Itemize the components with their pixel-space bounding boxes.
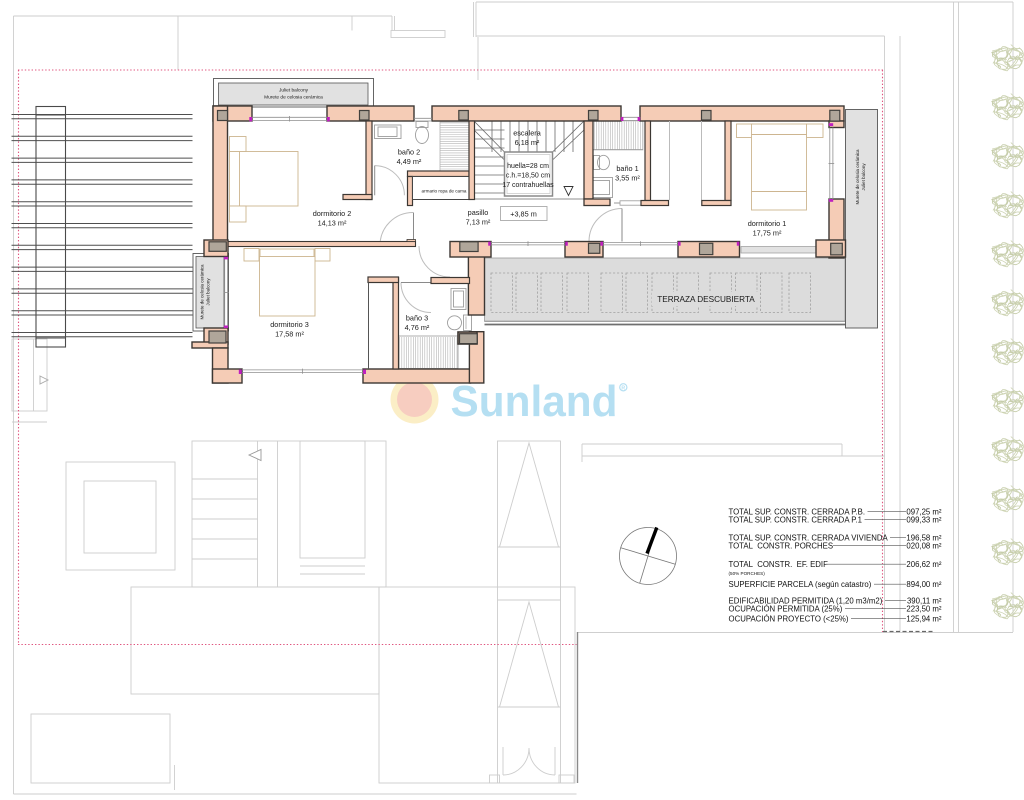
svg-text:TOTAL SUP. CONSTR. CERRADA P.1: TOTAL SUP. CONSTR. CERRADA P.1: [729, 516, 862, 525]
svg-text:206,62 m²: 206,62 m²: [906, 560, 942, 569]
svg-text:TOTAL CONSTR. EF. EDIF: TOTAL CONSTR. EF. EDIF: [729, 560, 829, 569]
svg-text:escalera: escalera: [513, 129, 542, 138]
svg-text:TERRAZA DESCUBIERTA: TERRAZA DESCUBIERTA: [657, 295, 755, 304]
svg-text:6,18 m²: 6,18 m²: [515, 138, 540, 147]
svg-text:Sunland: Sunland: [451, 378, 618, 426]
svg-text:+3,85 m: +3,85 m: [510, 210, 537, 219]
svg-text:dormitorio 2: dormitorio 2: [313, 209, 352, 218]
svg-text:17 contrahuellas: 17 contrahuellas: [502, 182, 554, 189]
svg-text:4,76 m²: 4,76 m²: [405, 323, 430, 332]
svg-text:dormitorio 1: dormitorio 1: [748, 219, 787, 228]
svg-text:TOTAL CONSTR. PORCHES: TOTAL CONSTR. PORCHES: [729, 542, 834, 551]
svg-text:OCUPACIÓN PROYECTO (<25%): OCUPACIÓN PROYECTO (<25%): [729, 615, 849, 624]
svg-text:3,55 m²: 3,55 m²: [615, 174, 640, 183]
svg-text:14,13 m²: 14,13 m²: [318, 219, 347, 228]
svg-text:dormitorio 3: dormitorio 3: [270, 320, 309, 329]
svg-text:(50% PORCHES): (50% PORCHES): [729, 571, 766, 576]
svg-text:SUPERFICIE PARCELA (según cata: SUPERFICIE PARCELA (según catastro): [729, 580, 872, 589]
svg-text:894,00 m²: 894,00 m²: [906, 580, 942, 589]
svg-text:c.h.=18,50 cm: c.h.=18,50 cm: [506, 173, 550, 180]
svg-text:125,94 m²: 125,94 m²: [906, 615, 942, 624]
svg-text:baño 3: baño 3: [406, 314, 428, 323]
svg-text:Juliet balcony: Juliet balcony: [279, 88, 309, 94]
svg-text:4,49 m²: 4,49 m²: [397, 157, 422, 166]
svg-text:baño 2: baño 2: [398, 148, 420, 157]
svg-text:huella=28 cm: huella=28 cm: [507, 163, 549, 170]
svg-text:17,75 m²: 17,75 m²: [753, 229, 782, 238]
svg-text:7,13 m²: 7,13 m²: [466, 218, 491, 227]
svg-text:020,08 m²: 020,08 m²: [906, 542, 942, 551]
svg-text:pasillo: pasillo: [468, 208, 489, 217]
svg-text:17,58 m²: 17,58 m²: [275, 330, 304, 339]
svg-text:R: R: [621, 386, 625, 392]
svg-text:099,33 m²: 099,33 m²: [906, 516, 942, 525]
svg-text:223,50 m²: 223,50 m²: [906, 605, 942, 614]
svg-text:OCUPACIÓN PERMITIDA (25%): OCUPACIÓN PERMITIDA (25%): [729, 605, 843, 614]
svg-text:baño 1: baño 1: [616, 164, 638, 173]
svg-text:armario ropa de cama: armario ropa de cama: [422, 189, 467, 194]
svg-text:Murete de celosia cerámica: Murete de celosia cerámica: [264, 95, 323, 101]
